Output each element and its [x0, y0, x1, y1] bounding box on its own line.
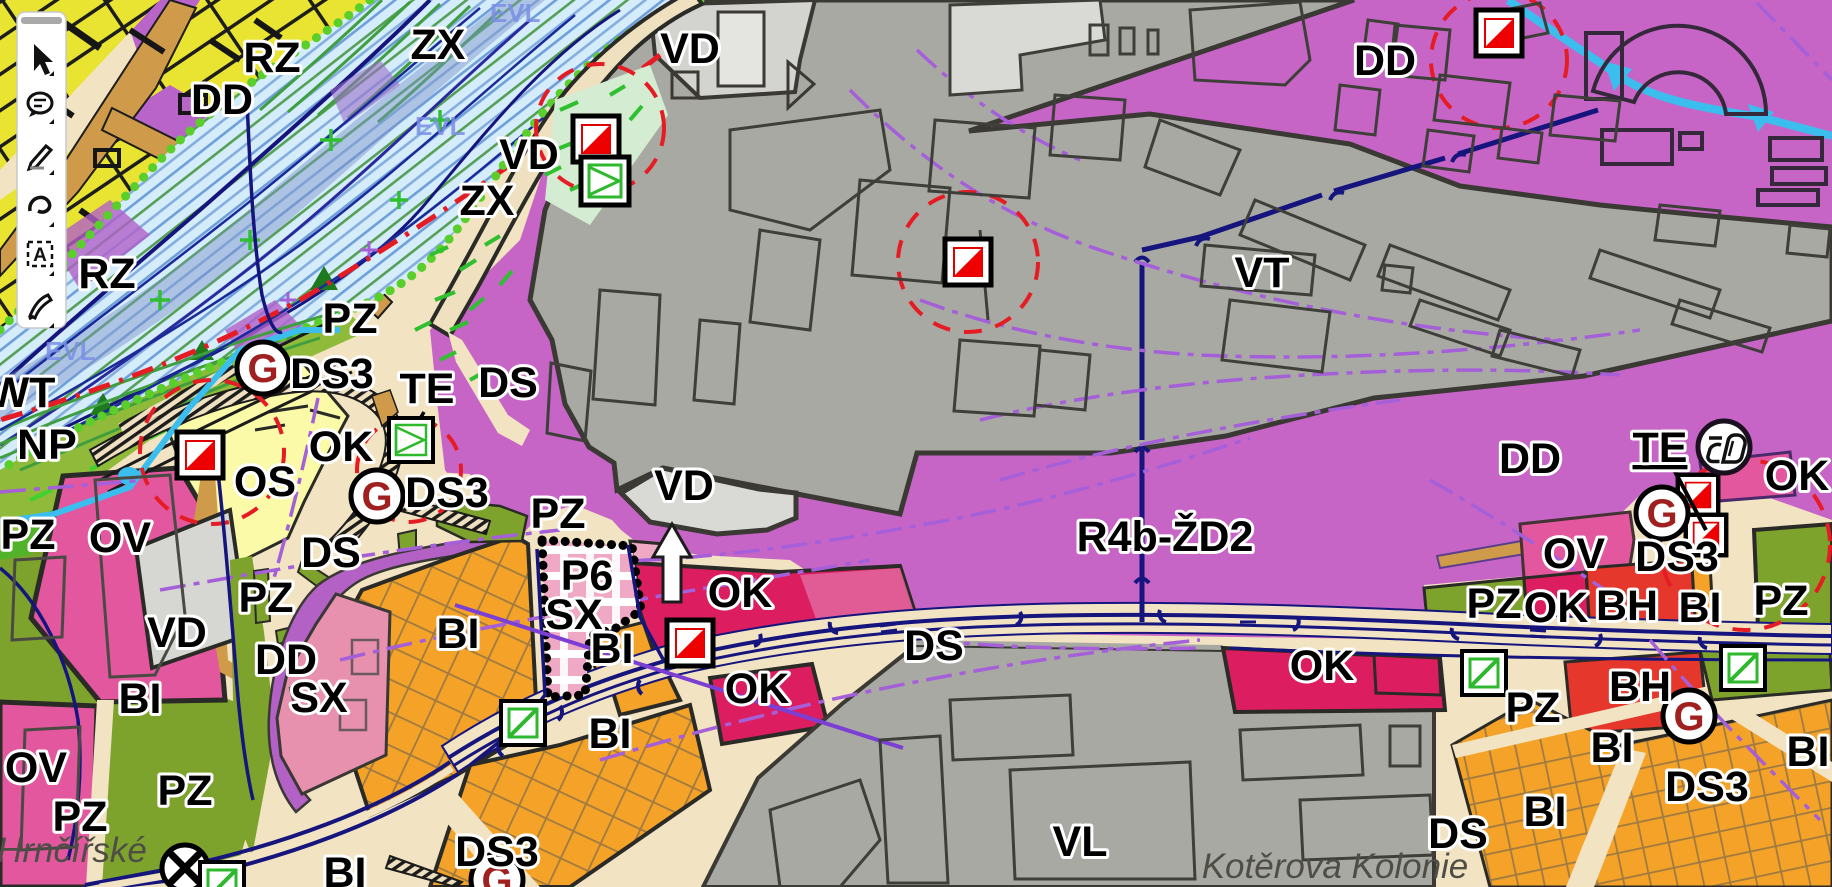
svg-text:RZ: RZ [243, 34, 300, 82]
svg-text:G: G [361, 475, 392, 519]
svg-text:EVL: EVL [415, 111, 466, 141]
svg-text:DS3: DS3 [405, 469, 489, 517]
svg-text:DS3: DS3 [455, 828, 539, 876]
svg-text:PZ: PZ [1506, 684, 1561, 732]
svg-text:DS: DS [478, 359, 538, 407]
svg-text:BI: BI [591, 625, 634, 673]
svg-text:VD: VD [499, 131, 559, 179]
svg-text:OK: OK [1765, 452, 1830, 500]
svg-text:Hrnčířské: Hrnčířské [0, 831, 147, 870]
svg-text:Kotěrova Kolonie: Kotěrova Kolonie [1202, 847, 1469, 886]
svg-text:BI: BI [324, 849, 367, 887]
svg-text:WT: WT [0, 369, 55, 417]
svg-text:OK: OK [1524, 584, 1589, 632]
svg-text:PZ: PZ [531, 490, 586, 538]
svg-text:OK: OK [725, 665, 790, 713]
svg-text:PZ: PZ [1467, 580, 1522, 628]
svg-text:DD: DD [191, 76, 253, 124]
svg-text:BH: BH [1609, 663, 1671, 711]
svg-text:RZ: RZ [78, 250, 135, 298]
svg-text:DS3: DS3 [1635, 533, 1719, 581]
svg-text:VD: VD [660, 25, 720, 73]
svg-text:BI: BI [1787, 728, 1830, 776]
svg-text:DS: DS [904, 622, 964, 670]
svg-text:BI: BI [1524, 788, 1567, 836]
svg-text:OS: OS [234, 458, 296, 506]
svg-text:G: G [247, 347, 278, 391]
svg-text:BH: BH [1596, 582, 1658, 630]
svg-text:OK: OK [708, 569, 773, 617]
svg-text:VD: VD [654, 462, 714, 510]
svg-text:BI: BI [589, 710, 632, 758]
svg-text:DS3: DS3 [1665, 763, 1749, 811]
svg-text:VD: VD [147, 609, 207, 657]
svg-text:EVL: EVL [490, 0, 541, 28]
svg-text:EVL: EVL [45, 336, 96, 366]
svg-text:DS3: DS3 [290, 350, 374, 398]
svg-text:A: A [33, 245, 47, 266]
svg-text:OV: OV [89, 514, 151, 562]
svg-text:NP: NP [17, 421, 77, 469]
svg-text:TE: TE [1633, 424, 1688, 472]
svg-text:OV: OV [1543, 530, 1605, 578]
svg-text:BI: BI [119, 675, 162, 723]
svg-text:VL: VL [1053, 818, 1108, 866]
svg-text:OK: OK [309, 423, 374, 471]
svg-text:BI: BI [1679, 584, 1722, 632]
svg-text:PZ: PZ [1, 511, 56, 559]
svg-text:PZ: PZ [1754, 577, 1809, 625]
svg-text:ZX: ZX [460, 177, 515, 225]
svg-text:DD: DD [1354, 37, 1416, 85]
svg-text:PZ: PZ [323, 295, 378, 343]
svg-text:BI: BI [437, 610, 480, 658]
svg-text:OV: OV [5, 744, 67, 792]
svg-text:G: G [1673, 695, 1704, 739]
svg-text:G: G [1646, 492, 1677, 536]
svg-text:TE: TE [400, 365, 455, 413]
svg-text:PZ: PZ [239, 574, 294, 622]
svg-text:BI: BI [1591, 724, 1634, 772]
svg-text:VT: VT [1235, 249, 1290, 297]
svg-text:PZ: PZ [158, 767, 213, 815]
svg-text:DS: DS [301, 529, 361, 577]
svg-text:ZX: ZX [411, 21, 466, 69]
svg-text:R4b-ŽD2: R4b-ŽD2 [1077, 512, 1254, 561]
svg-text:DD: DD [1499, 435, 1561, 483]
svg-text:SX: SX [290, 674, 348, 722]
svg-text:OK: OK [1290, 642, 1355, 690]
